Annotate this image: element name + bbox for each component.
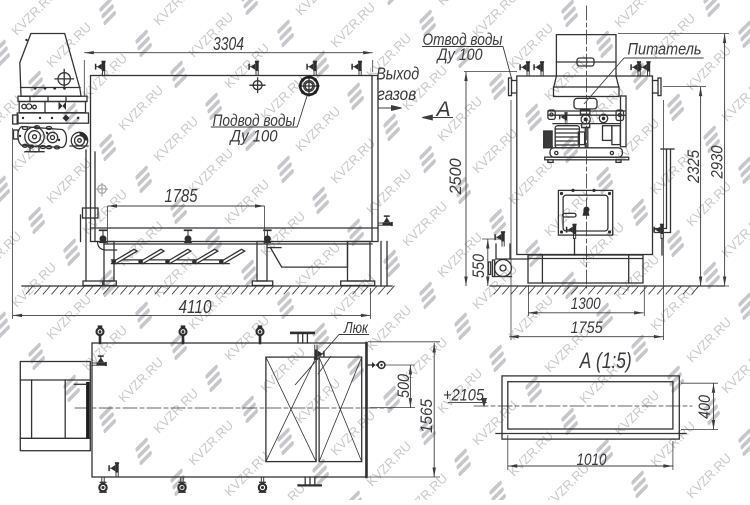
svg-text:А (1:5): А (1:5) bbox=[578, 348, 632, 373]
svg-text:550: 550 bbox=[469, 254, 488, 278]
svg-text:Выход: Выход bbox=[376, 64, 419, 84]
svg-text:500: 500 bbox=[394, 374, 413, 398]
svg-text:2930: 2930 bbox=[708, 145, 727, 179]
svg-text:газов: газов bbox=[377, 84, 416, 104]
svg-text:Ду 100: Ду 100 bbox=[229, 127, 278, 146]
svg-text:2325: 2325 bbox=[684, 150, 703, 184]
svg-text:1785: 1785 bbox=[165, 186, 199, 206]
svg-text:400: 400 bbox=[695, 395, 714, 419]
svg-text:1565: 1565 bbox=[417, 399, 436, 433]
svg-text:4110: 4110 bbox=[179, 297, 212, 317]
svg-text:Питатель: Питатель bbox=[628, 40, 702, 59]
svg-text:1755: 1755 bbox=[571, 318, 603, 337]
svg-text:2500: 2500 bbox=[446, 158, 465, 195]
svg-text:3304: 3304 bbox=[213, 34, 244, 54]
svg-text:Ду 100: Ду 100 bbox=[436, 45, 483, 64]
svg-text:+2105: +2105 bbox=[443, 386, 484, 405]
svg-text:1010: 1010 bbox=[577, 450, 607, 469]
svg-text:1300: 1300 bbox=[571, 294, 601, 313]
